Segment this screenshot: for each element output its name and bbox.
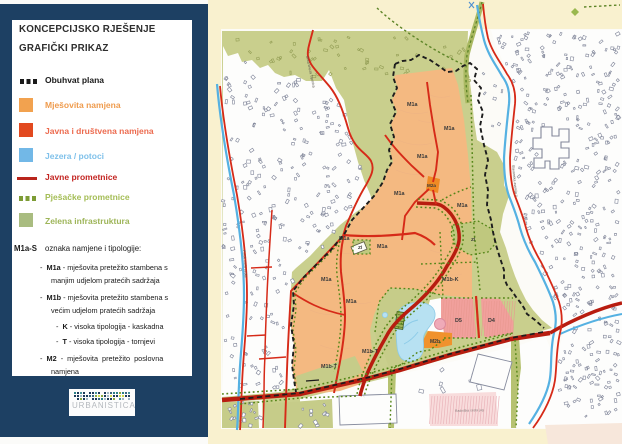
svg-text:M1a: M1a <box>417 154 428 160</box>
svg-text:Zl: Zl <box>471 237 475 243</box>
svg-text:M1a: M1a <box>377 244 388 250</box>
svg-text:M1a: M1a <box>444 126 455 132</box>
svg-text:M1a: M1a <box>394 191 405 197</box>
svg-text:M1a: M1a <box>407 102 418 108</box>
svg-text:M1a: M1a <box>321 277 332 283</box>
svg-text:M2a: M2a <box>427 183 436 188</box>
svg-text:Zl: Zl <box>358 245 362 251</box>
svg-text:M1a: M1a <box>457 203 468 209</box>
svg-text:M1b-K: M1b-K <box>442 277 459 283</box>
svg-text:D5: D5 <box>455 318 462 324</box>
svg-text:D4: D4 <box>488 318 495 324</box>
svg-text:M1a: M1a <box>339 236 350 242</box>
svg-text:M2b: M2b <box>430 339 440 345</box>
svg-text:M1b-T: M1b-T <box>321 364 338 370</box>
svg-text:M1b-T: M1b-T <box>362 349 379 355</box>
svg-text:M1a: M1a <box>346 299 357 305</box>
